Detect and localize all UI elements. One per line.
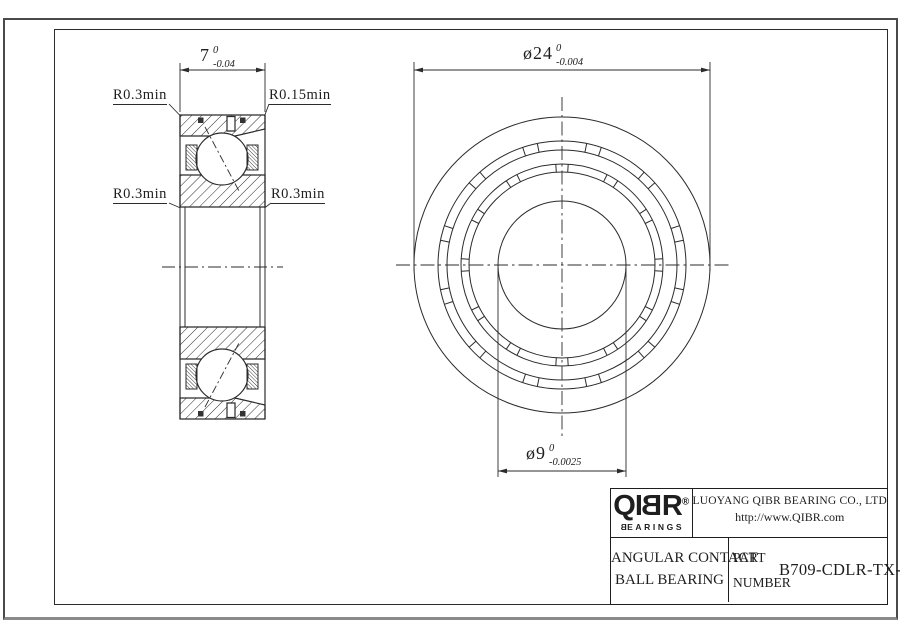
radius-label-mid-right: R0.3min [271,187,325,204]
radius-label-top-left: R0.3min [113,88,167,105]
logo-subtitle: BEARINGS [611,522,692,532]
company-cell: LUOYANG QIBR BEARING CO., LTD http://www… [693,489,888,537]
registered-mark: ® [682,496,689,507]
product-line1: ANGULAR CONTACT [611,547,728,569]
bore-lower-tol: -0.0025 [549,457,581,469]
product-name-cell: ANGULAR CONTACT BALL BEARING [611,538,729,602]
title-block: QIBR® BEARINGS LUOYANG QIBR BEARING CO.,… [610,488,888,605]
drawing-sheet: 7 0 -0.04 ø24 0 -0.004 ø9 0 -0.0025 R0.3… [0,0,900,636]
company-name: LUOYANG QIBR BEARING CO., LTD [693,495,888,507]
width-upper-tol: 0 [213,45,235,57]
left-view-cross-section [162,115,283,419]
bore-dimension: ø9 0 -0.0025 [526,444,581,469]
radius-label-top-right: R0.15min [269,88,331,105]
radius-label-mid-left: R0.3min [113,187,167,204]
part-number-cell: PART NUMBER B709-CDLR-TX-P2 [729,538,900,602]
width-value: 7 [200,46,210,64]
width-dimension: 7 0 -0.04 [200,46,235,71]
od-upper-tol: 0 [556,43,583,55]
bore-upper-tol: 0 [549,443,581,455]
logo-cell: QIBR® BEARINGS [611,489,693,537]
od-lower-tol: -0.004 [556,57,583,69]
bore-value: ø9 [526,444,546,462]
company-website: http://www.QIBR.com [693,510,888,525]
part-number-label: PART NUMBER [729,545,779,595]
qibr-logo: QIBR® [611,492,692,521]
width-lower-tol: -0.04 [213,59,235,71]
part-number-value: B709-CDLR-TX-P2 [779,560,900,580]
product-line2: BALL BEARING [611,569,728,591]
od-dimension: ø24 0 -0.004 [523,44,583,69]
od-value: ø24 [523,44,553,62]
front-view-centerlines [396,97,729,437]
front-view [396,97,729,437]
